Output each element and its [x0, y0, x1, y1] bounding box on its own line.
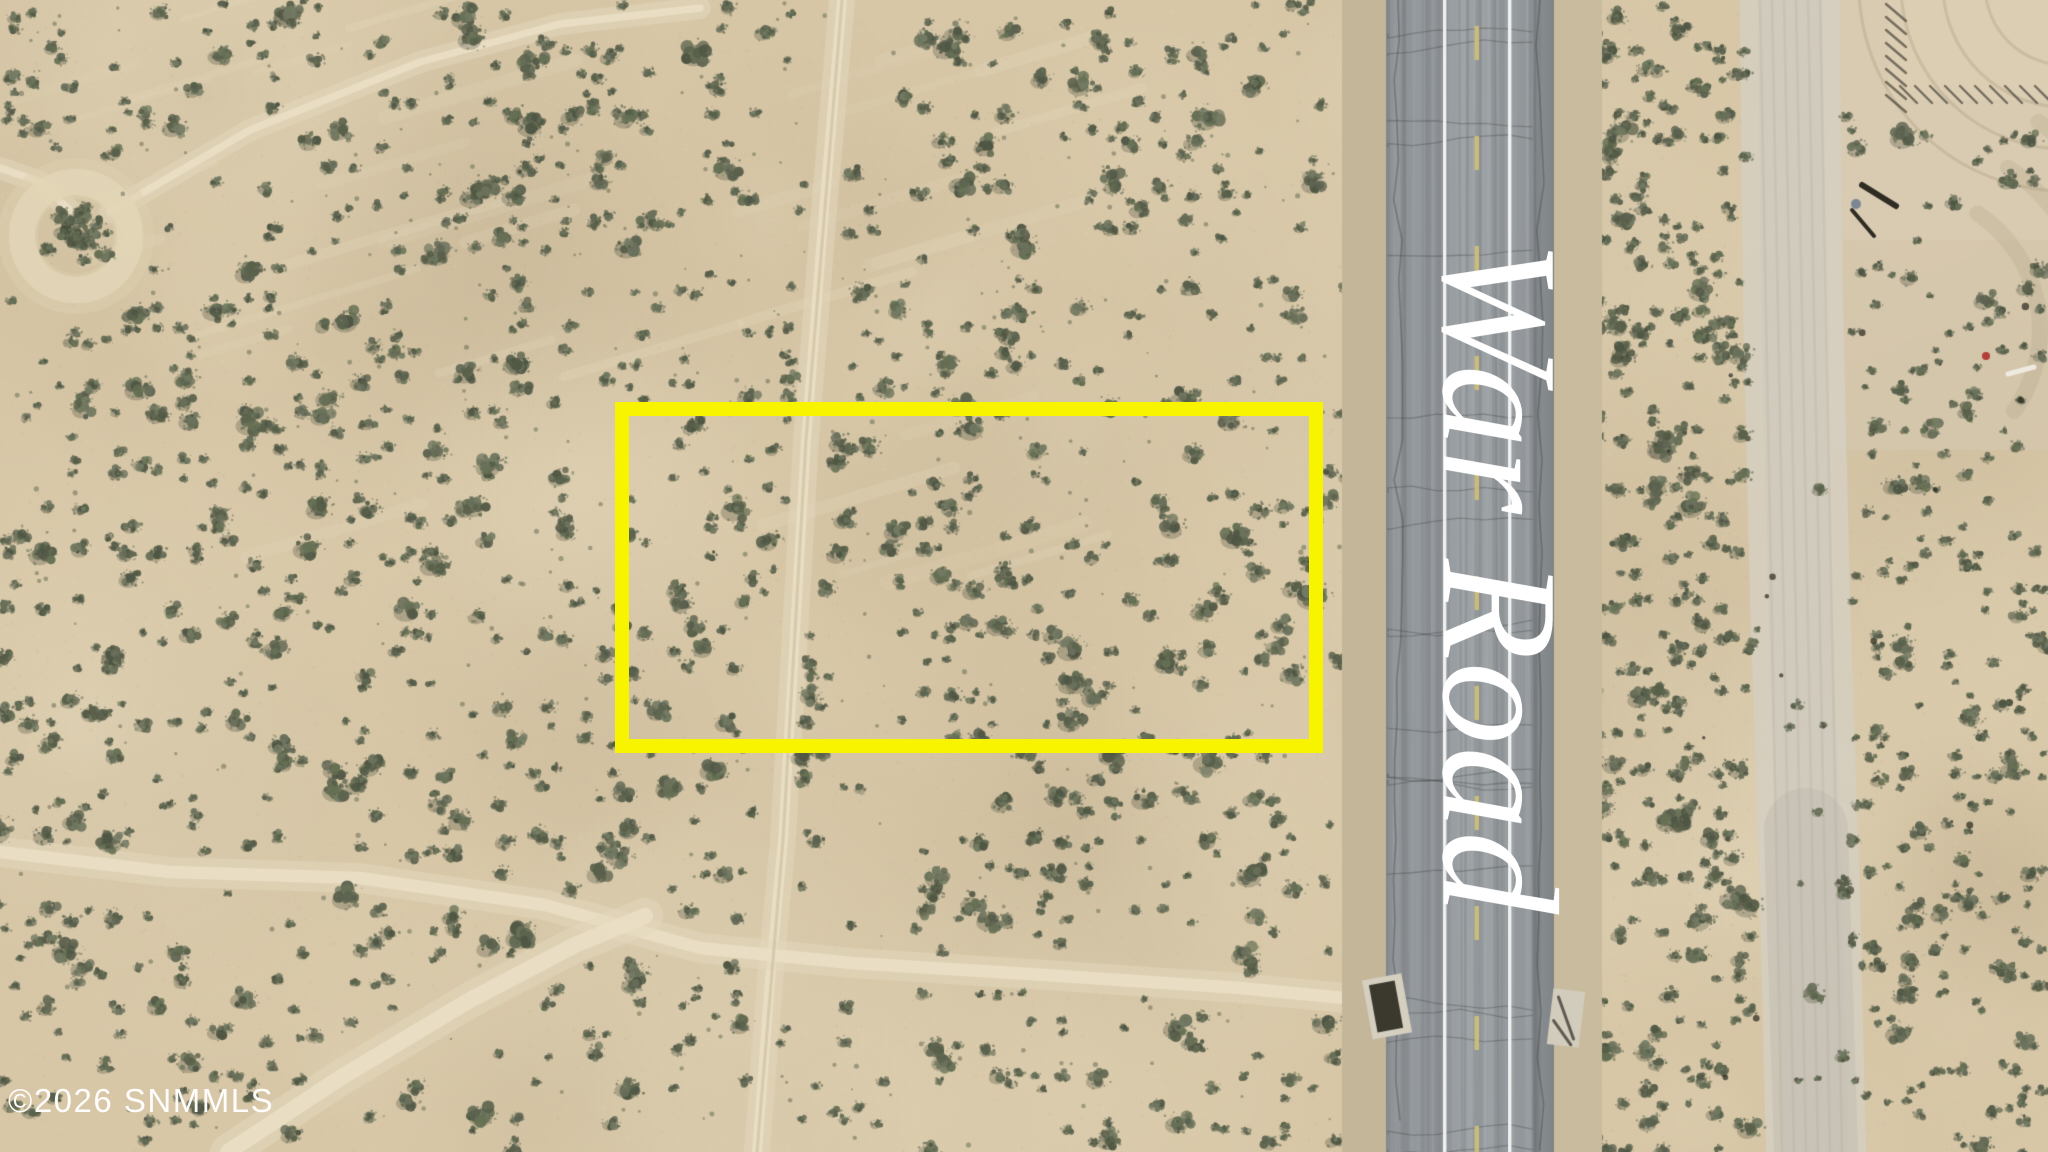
aerial-photo: War Road ©2026 SNMMLS [0, 0, 2048, 1152]
road-name-label: War Road [1417, 240, 1583, 916]
parcel-boundary-rectangle [615, 402, 1323, 753]
mls-watermark: ©2026 SNMMLS [8, 1082, 274, 1120]
